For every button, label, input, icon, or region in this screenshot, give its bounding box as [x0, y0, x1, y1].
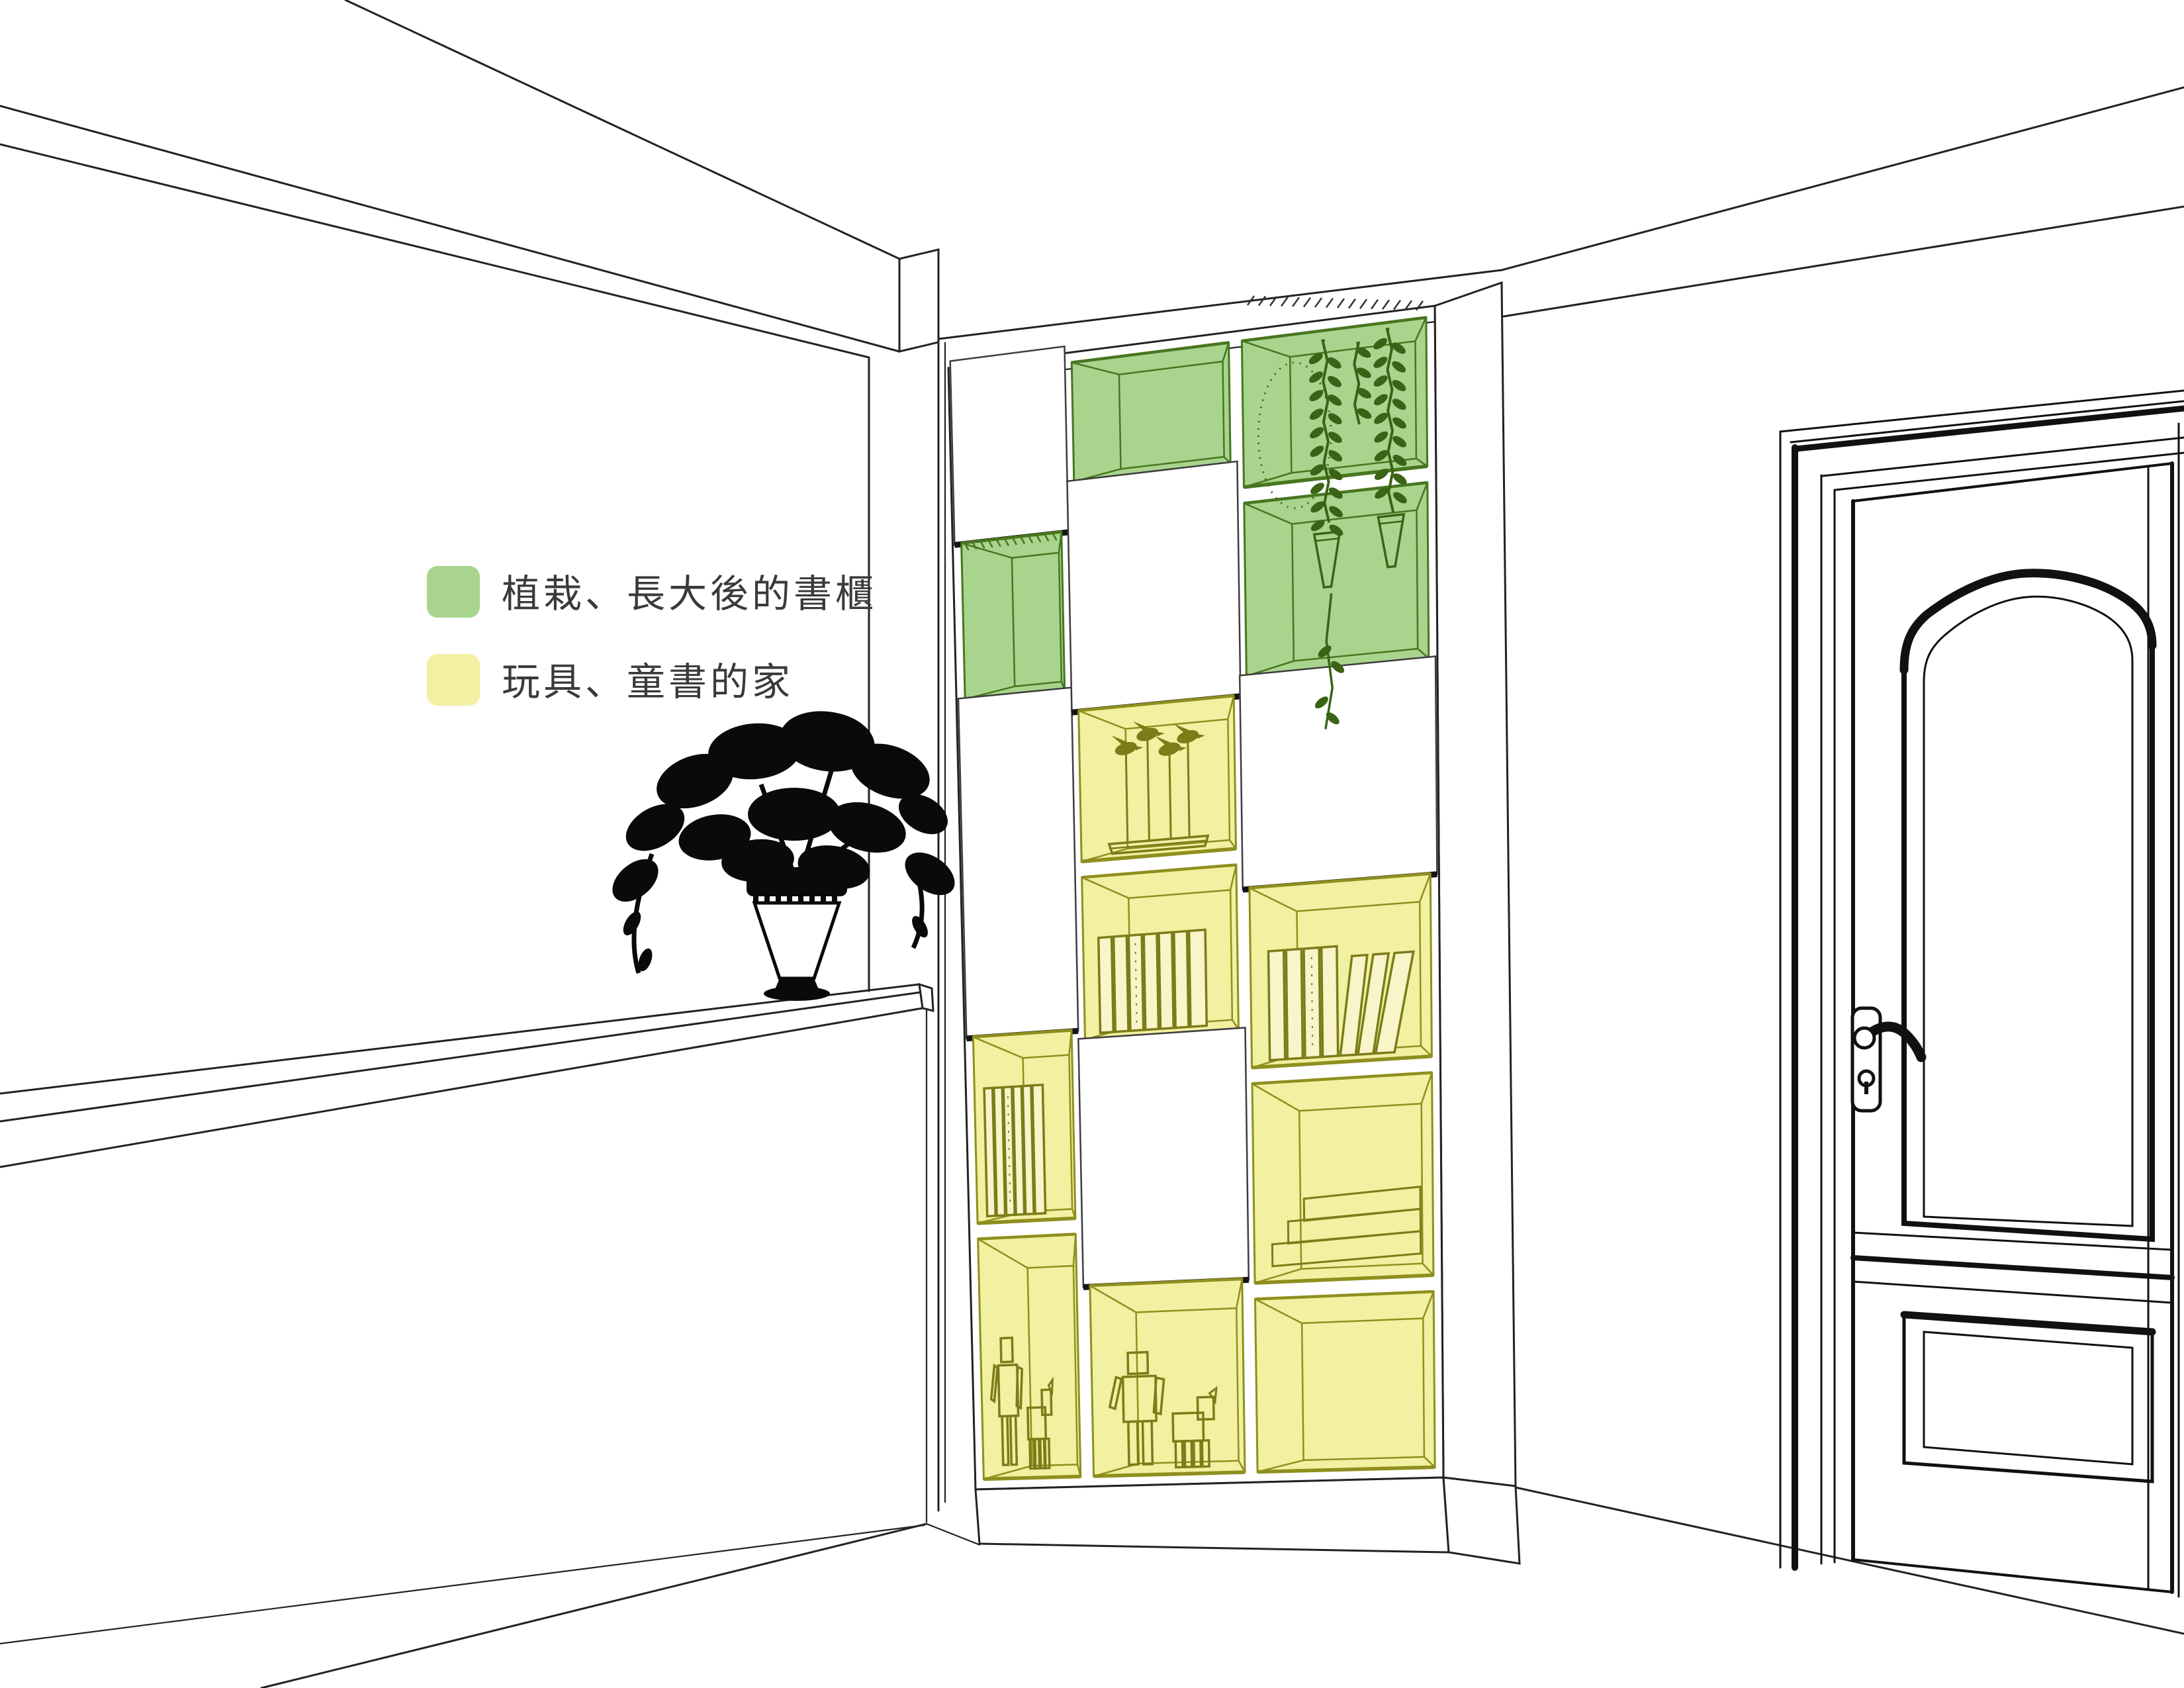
cabinet-door-closed: [1068, 461, 1241, 712]
cabinet-plinth-front: [976, 1477, 1449, 1552]
left-baseboard-line: [0, 1525, 925, 1644]
legend-label-yellow: 玩具、童書的家: [502, 661, 794, 704]
right-wall-ceiling-line: [1502, 87, 2184, 270]
legend-swatch-green: [427, 566, 480, 618]
cabinet-door-closed: [1078, 1028, 1248, 1288]
ledge-end-cap: [919, 984, 933, 1011]
ledge-band-bottom: [0, 1008, 923, 1167]
bookshelf-cabinet: [948, 283, 1520, 1564]
cabinet-door-closed: [950, 346, 1068, 545]
right-wall-soffit-line: [1504, 207, 2184, 316]
beam-end-face: [899, 250, 938, 352]
cabinet-cells: [950, 296, 1437, 1479]
cabinet-side-panel: [1435, 283, 1516, 1486]
door-trim-line: [1780, 391, 2184, 432]
legend-swatch-yellow: [427, 654, 480, 706]
vase: [747, 867, 847, 1001]
legend: 植栽、長大後的書櫃 玩具、童書的家: [427, 566, 877, 706]
cabinet-door-closed: [1240, 657, 1437, 890]
beam-bottom-edge: [0, 106, 899, 352]
handle-escutcheon-plate: [1852, 1008, 1880, 1111]
handle-boss: [1854, 1028, 1874, 1048]
beam-lower-edge: [0, 144, 869, 357]
beam-top-edge: [345, 0, 899, 259]
vase-plant-silhouette: [604, 705, 962, 1001]
cabinet-plinth-side: [1443, 1477, 1520, 1564]
ledge-back-edge: [0, 984, 919, 1094]
legend-label-green: 植栽、長大後的書櫃: [502, 573, 877, 616]
room-illustration: 植栽、長大後的書櫃 玩具、童書的家: [0, 0, 2184, 1688]
door: [1780, 391, 2184, 1597]
ledge-front-edge: [0, 992, 921, 1121]
left-floor-line: [261, 1524, 927, 1688]
cabinet-door-closed: [958, 688, 1078, 1039]
door-frame-head-outer: [1791, 401, 2184, 442]
niche-floor-line: [927, 1524, 980, 1545]
